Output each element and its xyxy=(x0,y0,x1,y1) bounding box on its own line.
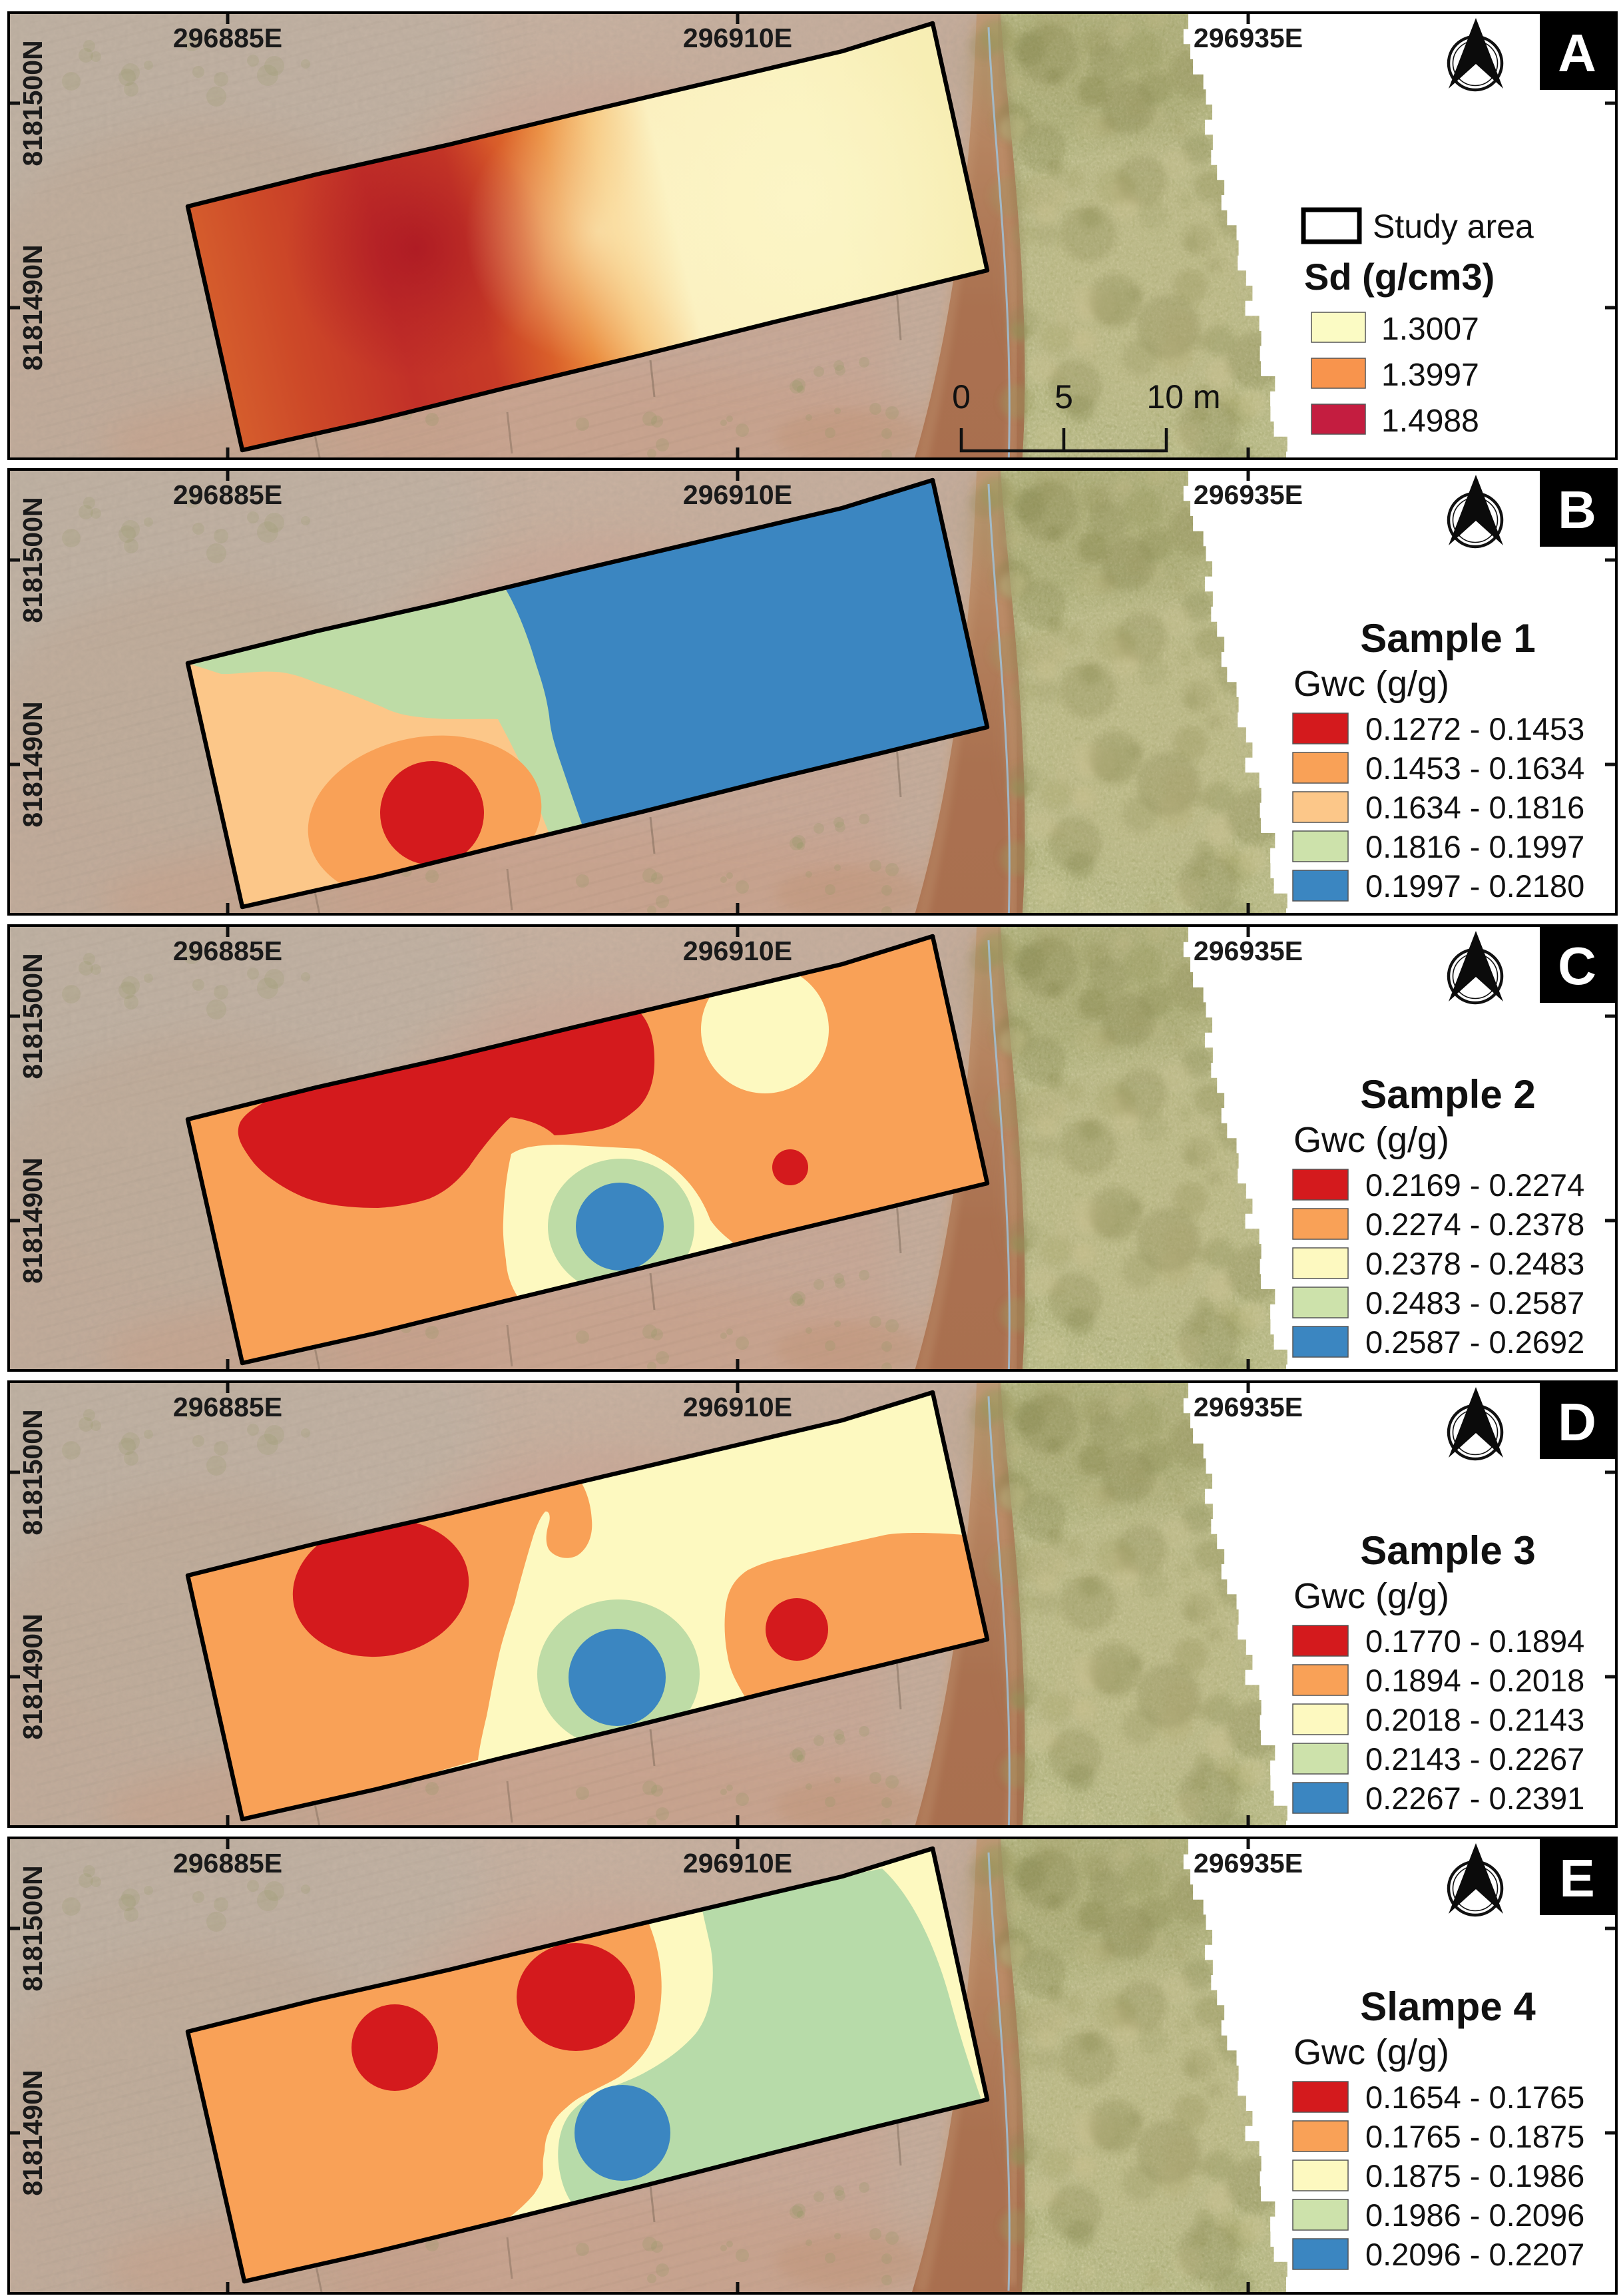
svg-text:0.2378 - 0.2483: 0.2378 - 0.2483 xyxy=(1365,1246,1584,1281)
svg-text:10 m: 10 m xyxy=(1146,378,1220,416)
svg-text:8181490N: 8181490N xyxy=(17,701,48,827)
svg-text:Study area: Study area xyxy=(1373,208,1534,245)
svg-text:296910E: 296910E xyxy=(683,23,792,53)
svg-text:C: C xyxy=(1558,936,1596,996)
svg-text:0.1894 - 0.2018: 0.1894 - 0.2018 xyxy=(1365,1663,1584,1698)
svg-text:0.1634 - 0.1816: 0.1634 - 0.1816 xyxy=(1365,790,1584,825)
svg-text:0.1765 - 0.1875: 0.1765 - 0.1875 xyxy=(1365,2119,1584,2154)
svg-text:Sd (g/cm3): Sd (g/cm3) xyxy=(1304,256,1495,298)
svg-text:296935E: 296935E xyxy=(1194,479,1303,510)
svg-text:8181490N: 8181490N xyxy=(17,2070,48,2195)
svg-text:8181500N: 8181500N xyxy=(17,497,48,623)
svg-text:0.1453 - 0.1634: 0.1453 - 0.1634 xyxy=(1365,750,1584,786)
svg-text:296935E: 296935E xyxy=(1194,23,1303,53)
svg-text:A: A xyxy=(1558,23,1596,83)
svg-text:0.1875 - 0.1986: 0.1875 - 0.1986 xyxy=(1365,2158,1584,2193)
svg-text:296910E: 296910E xyxy=(683,479,792,510)
svg-text:Gwc (g/g): Gwc (g/g) xyxy=(1293,1576,1449,1616)
svg-text:0.2169 - 0.2274: 0.2169 - 0.2274 xyxy=(1365,1167,1584,1203)
svg-text:1.3997: 1.3997 xyxy=(1381,358,1479,393)
svg-text:8181490N: 8181490N xyxy=(17,244,48,370)
svg-text:Gwc (g/g): Gwc (g/g) xyxy=(1293,2032,1449,2072)
svg-text:8181490N: 8181490N xyxy=(17,1157,48,1283)
svg-text:0.2267 - 0.2391: 0.2267 - 0.2391 xyxy=(1365,1781,1584,1816)
svg-text:0.1986 - 0.2096: 0.1986 - 0.2096 xyxy=(1365,2197,1584,2233)
svg-text:B: B xyxy=(1558,480,1596,539)
svg-text:1.4988: 1.4988 xyxy=(1381,404,1479,439)
svg-text:Gwc (g/g): Gwc (g/g) xyxy=(1293,664,1449,704)
svg-text:296935E: 296935E xyxy=(1194,1848,1303,1878)
svg-text:0.1654 - 0.1765: 0.1654 - 0.1765 xyxy=(1365,2080,1584,2115)
svg-text:296885E: 296885E xyxy=(173,479,282,510)
svg-text:Slampe 4: Slampe 4 xyxy=(1360,1984,1536,2029)
svg-text:296910E: 296910E xyxy=(683,936,792,966)
svg-text:0.2096 - 0.2207: 0.2096 - 0.2207 xyxy=(1365,2237,1584,2272)
svg-text:Gwc (g/g): Gwc (g/g) xyxy=(1293,1120,1449,1160)
svg-text:296935E: 296935E xyxy=(1194,1392,1303,1422)
svg-text:8181490N: 8181490N xyxy=(17,1613,48,1739)
svg-text:E: E xyxy=(1559,1849,1594,1908)
svg-text:Sample 3: Sample 3 xyxy=(1360,1528,1535,1573)
svg-text:Sample 1: Sample 1 xyxy=(1360,616,1535,661)
svg-text:296885E: 296885E xyxy=(173,1848,282,1878)
svg-text:0.2587 - 0.2692: 0.2587 - 0.2692 xyxy=(1365,1324,1584,1360)
svg-text:296910E: 296910E xyxy=(683,1848,792,1878)
svg-text:0.2483 - 0.2587: 0.2483 - 0.2587 xyxy=(1365,1285,1584,1320)
svg-text:296935E: 296935E xyxy=(1194,936,1303,966)
svg-text:0.2143 - 0.2267: 0.2143 - 0.2267 xyxy=(1365,1741,1584,1777)
svg-text:0.1272 - 0.1453: 0.1272 - 0.1453 xyxy=(1365,711,1584,746)
svg-text:1.3007: 1.3007 xyxy=(1381,312,1479,347)
svg-text:296885E: 296885E xyxy=(173,23,282,53)
svg-text:8181500N: 8181500N xyxy=(17,953,48,1079)
svg-text:0: 0 xyxy=(952,378,971,416)
svg-text:0.2274 - 0.2378: 0.2274 - 0.2378 xyxy=(1365,1207,1584,1242)
svg-text:D: D xyxy=(1558,1392,1596,1452)
svg-text:8181500N: 8181500N xyxy=(17,1409,48,1535)
svg-text:5: 5 xyxy=(1054,378,1073,416)
svg-text:296910E: 296910E xyxy=(683,1392,792,1422)
svg-text:8181500N: 8181500N xyxy=(17,40,48,166)
svg-text:0.1770 - 0.1894: 0.1770 - 0.1894 xyxy=(1365,1623,1584,1659)
svg-text:0.1997 - 0.2180: 0.1997 - 0.2180 xyxy=(1365,868,1584,904)
svg-text:Sample 2: Sample 2 xyxy=(1360,1072,1535,1117)
svg-text:0.2018 - 0.2143: 0.2018 - 0.2143 xyxy=(1365,1702,1584,1737)
svg-text:296885E: 296885E xyxy=(173,936,282,966)
svg-text:8181500N: 8181500N xyxy=(17,1865,48,1991)
svg-text:0.1816 - 0.1997: 0.1816 - 0.1997 xyxy=(1365,829,1584,864)
svg-text:296885E: 296885E xyxy=(173,1392,282,1422)
